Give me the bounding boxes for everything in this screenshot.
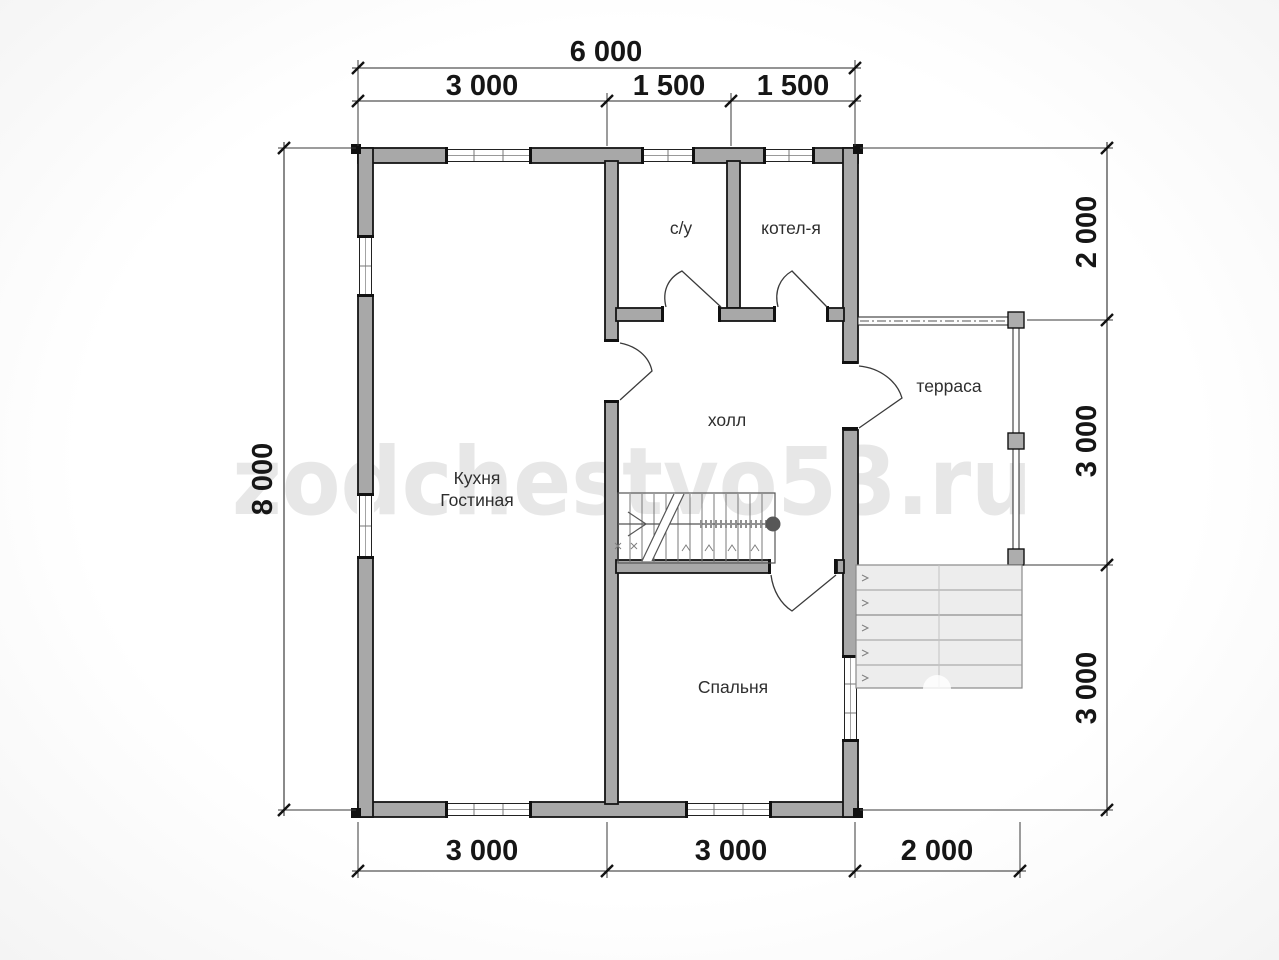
exterior-steps bbox=[856, 565, 1022, 703]
window bbox=[445, 801, 532, 818]
dim-right-seg-1: 2 000 bbox=[1071, 196, 1103, 269]
dimensions-bottom: 3 000 3 000 2 000 bbox=[352, 822, 1026, 878]
dim-bottom-seg-1: 3 000 bbox=[446, 835, 519, 867]
dim-top-total: 6 000 bbox=[570, 36, 643, 68]
window bbox=[445, 147, 532, 164]
door-bedroom bbox=[768, 559, 837, 611]
watermark: zodchestvo53.ru bbox=[232, 428, 1032, 537]
dim-right-seg-3: 3 000 bbox=[1071, 652, 1103, 725]
railing-post bbox=[1008, 549, 1024, 565]
dim-top-seg-1: 3 000 bbox=[446, 70, 519, 102]
stair-newel-post bbox=[766, 517, 781, 532]
floor-plan-drawing: zodchestvo53.ru bbox=[0, 0, 1279, 960]
dim-bottom-seg-3: 2 000 bbox=[901, 835, 974, 867]
door-bathroom bbox=[661, 271, 721, 322]
window bbox=[685, 801, 772, 818]
window bbox=[641, 147, 695, 164]
room-label-bedroom: Спальня bbox=[698, 677, 768, 697]
dim-left-total: 8 000 bbox=[247, 443, 279, 516]
railing-post bbox=[1008, 433, 1024, 449]
dim-right-seg-2: 3 000 bbox=[1071, 405, 1103, 478]
door-boiler-room bbox=[773, 271, 829, 322]
window bbox=[357, 235, 374, 297]
room-label-terrace: терраса bbox=[916, 376, 981, 396]
dim-bottom-seg-2: 3 000 bbox=[695, 835, 768, 867]
door-terrace bbox=[842, 361, 902, 430]
dim-top-seg-3: 1 500 bbox=[757, 70, 830, 102]
room-label-boiler: котел-я bbox=[761, 218, 821, 238]
room-label-hall: холл bbox=[708, 410, 746, 430]
window bbox=[763, 147, 815, 164]
room-label-kitchen-1: Кухня bbox=[454, 468, 501, 488]
dim-top-seg-2: 1 500 bbox=[633, 70, 706, 102]
door-kitchen bbox=[604, 339, 652, 403]
room-label-bathroom: с/у bbox=[670, 218, 693, 238]
railing-post bbox=[1008, 312, 1024, 328]
floor-plan-page: zodchestvo53.ru bbox=[0, 0, 1279, 960]
window bbox=[357, 493, 374, 559]
dimensions-top: 6 000 3 000 1 500 1 500 bbox=[352, 36, 861, 146]
room-label-kitchen-2: Гостиная bbox=[440, 490, 513, 510]
